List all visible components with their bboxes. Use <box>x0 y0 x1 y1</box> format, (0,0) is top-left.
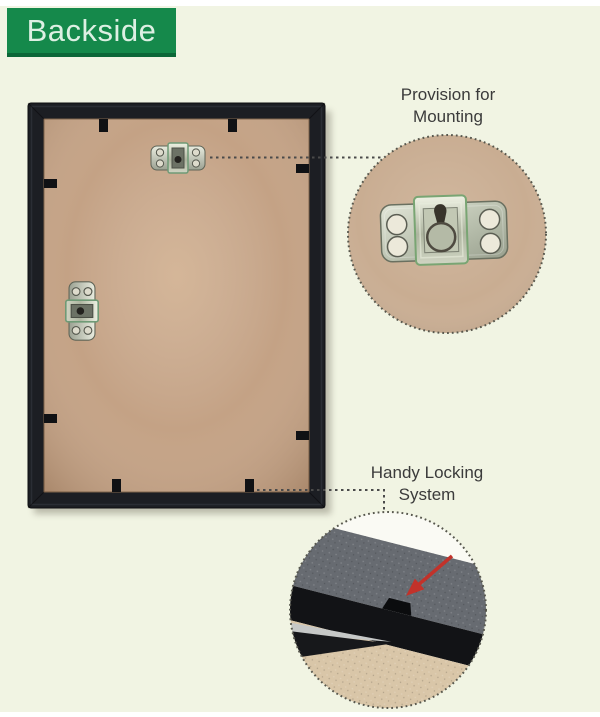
locking-label-line1: Handy Locking <box>347 462 507 484</box>
backside-banner-label: Backside <box>27 13 157 49</box>
inset-mounting-zoom <box>348 135 546 333</box>
mounting-label-line2: Mounting <box>368 106 528 128</box>
mounting-bracket-left <box>66 282 98 340</box>
inset-locking-zoom <box>241 507 522 717</box>
locking-label-line2: System <box>347 484 507 506</box>
mounting-label: Provision for Mounting <box>368 84 528 128</box>
frame-back <box>28 103 331 514</box>
locking-label: Handy Locking System <box>347 462 507 506</box>
backside-banner: Backside <box>7 8 176 57</box>
mounting-bracket-top <box>151 143 205 173</box>
mounting-bracket-closeup <box>380 194 508 266</box>
mounting-label-line1: Provision for <box>368 84 528 106</box>
